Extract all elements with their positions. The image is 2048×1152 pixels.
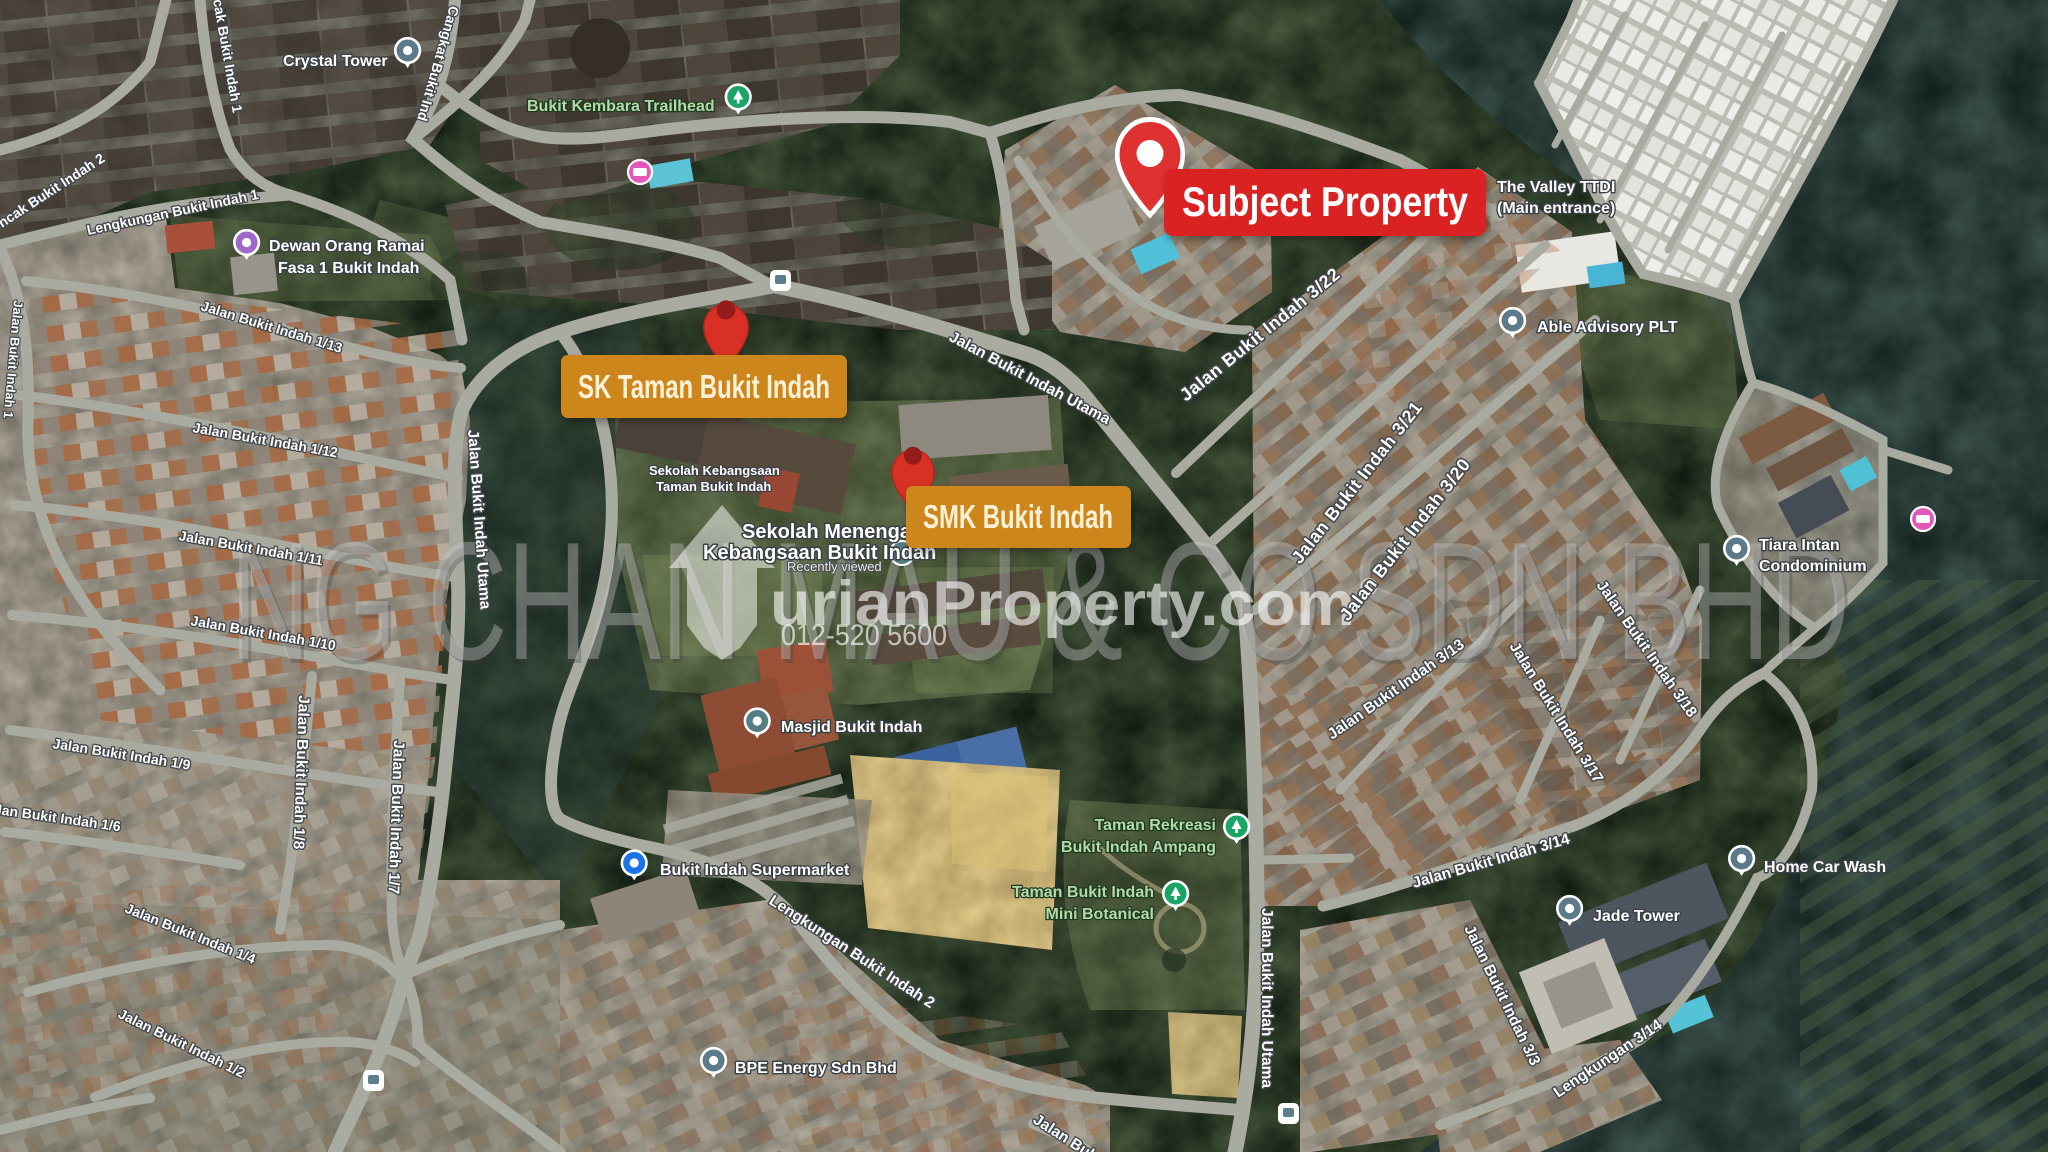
svg-text:Bukit Indah Ampang: Bukit Indah Ampang [1061, 839, 1216, 856]
svg-text:Taman Rekreasi: Taman Rekreasi [1094, 817, 1216, 834]
svg-text:SK Taman Bukit Indah: SK Taman Bukit Indah [578, 368, 830, 405]
svg-text:Able Advisory PLT: Able Advisory PLT [1537, 319, 1678, 336]
svg-text:Bukit Indah Supermarket: Bukit Indah Supermarket [660, 862, 850, 879]
svg-text:(Main entrance): (Main entrance) [1497, 200, 1615, 217]
svg-text:SMK Bukit Indah: SMK Bukit Indah [923, 498, 1113, 535]
svg-text:BPE Energy Sdn Bhd: BPE Energy Sdn Bhd [735, 1060, 897, 1077]
svg-text:The Valley TTDI: The Valley TTDI [1497, 179, 1615, 196]
svg-text:Fasa 1 Bukit Indah: Fasa 1 Bukit Indah [278, 260, 419, 277]
svg-text:Dewan Orang Ramai: Dewan Orang Ramai [269, 238, 425, 255]
svg-text:Bukit Kembara Trailhead: Bukit Kembara Trailhead [527, 98, 715, 115]
svg-text:Masjid Bukit Indah: Masjid Bukit Indah [781, 719, 922, 736]
svg-text:Tiara Intan: Tiara Intan [1759, 537, 1840, 554]
svg-text:Taman Bukit Indah: Taman Bukit Indah [656, 479, 771, 494]
svg-text:Home Car Wash: Home Car Wash [1764, 859, 1886, 876]
svg-text:Sekolah Menengah: Sekolah Menengah [742, 521, 923, 543]
svg-text:Crystal Tower: Crystal Tower [283, 53, 388, 70]
svg-text:Subject Property: Subject Property [1182, 178, 1469, 225]
svg-text:Jalan Bukit Indah Utama: Jalan Bukit Indah Utama [1258, 908, 1275, 1088]
svg-text:Condominium: Condominium [1759, 558, 1867, 575]
svg-text:Taman Bukit Indah: Taman Bukit Indah [1012, 884, 1154, 901]
svg-text:Sekolah Kebangsaan: Sekolah Kebangsaan [649, 463, 780, 478]
svg-text:Mini Botanical: Mini Botanical [1046, 906, 1154, 923]
svg-text:Jade Tower: Jade Tower [1593, 908, 1680, 925]
svg-text:012-520 5600: 012-520 5600 [781, 619, 947, 652]
svg-text:Recently viewed: Recently viewed [787, 559, 882, 574]
